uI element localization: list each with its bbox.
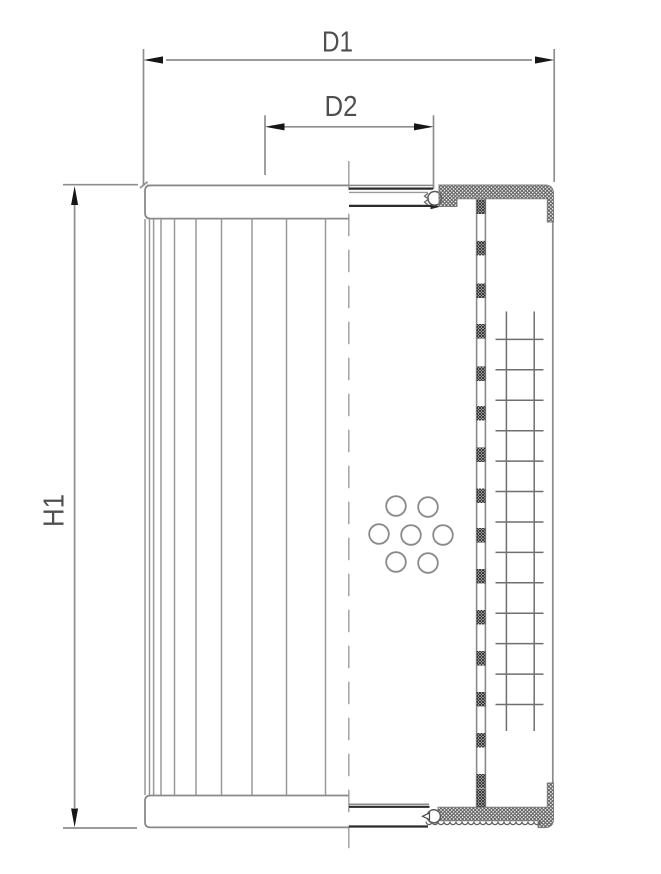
svg-text:D1: D1 bbox=[322, 27, 353, 59]
svg-text:D2: D2 bbox=[325, 91, 358, 123]
svg-text:H1: H1 bbox=[39, 494, 71, 527]
